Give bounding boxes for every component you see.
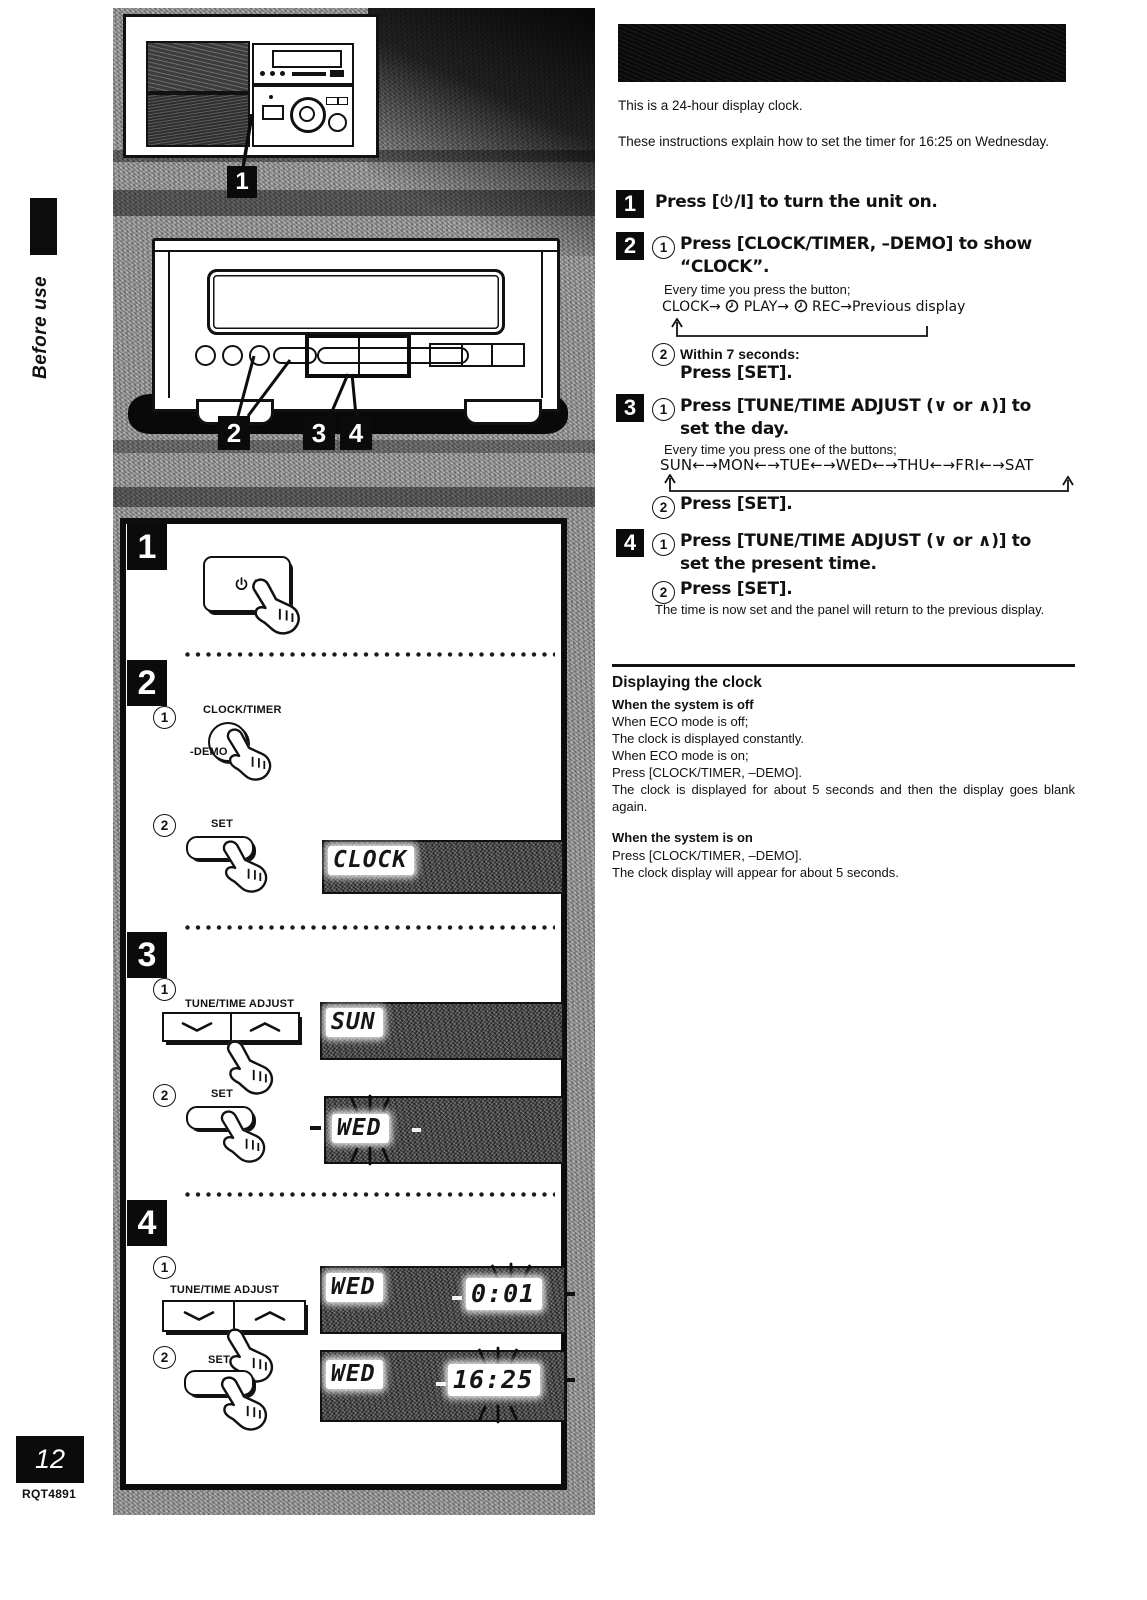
eco-on-line: When ECO mode is on; (612, 747, 749, 764)
circled-1: 1 (652, 398, 675, 421)
step-1-heading-pre: Press [ (655, 192, 719, 212)
box-step-2-number: 2 (127, 660, 167, 706)
triple-button-drawing (429, 343, 525, 367)
scan-dark-patch (368, 8, 595, 256)
circled-1: 1 (652, 533, 675, 556)
pointing-hand-icon (247, 578, 305, 636)
amplifier-unit-illustration (252, 85, 354, 147)
display-text: SUN (326, 1008, 383, 1037)
step-3-number: 3 (616, 394, 644, 422)
press-clock-timer-line: Press [CLOCK/TIMER, –DEMO]. (612, 847, 802, 864)
callout-lines-234 (210, 352, 370, 420)
display-day: WED (326, 1273, 383, 1302)
page-number-box: 12 (16, 1436, 84, 1483)
display-slot (272, 50, 342, 68)
section-divider (612, 664, 1075, 667)
set-label: SET (211, 818, 233, 830)
callout-1: 1 (227, 166, 257, 198)
step-4-number: 4 (616, 529, 644, 557)
box-step-3-number: 3 (127, 932, 167, 978)
blink-rays (334, 1146, 406, 1166)
set-label: SET (208, 1354, 230, 1366)
cycle-segment: CLOCK→ (662, 299, 721, 315)
step-3-heading-line1: Press [TUNE/TIME ADJUST (∨ or ∧)] to (680, 395, 1031, 418)
clock-appear-line: The clock display will appear for about … (612, 864, 899, 881)
knob-center (299, 106, 315, 122)
cassette-deck-illustration (146, 41, 250, 93)
circled-2: 2 (153, 1084, 176, 1107)
callout-4: 4 (340, 416, 372, 450)
box-step-1-number: 1 (127, 524, 167, 570)
button-block (330, 70, 344, 77)
display-text: WED (332, 1114, 389, 1143)
cycle-loop-arrow (663, 318, 955, 342)
step-2-number: 2 (616, 232, 644, 260)
panel-seam (541, 250, 543, 398)
display-day: WED (326, 1360, 383, 1389)
power-icon (719, 194, 734, 209)
section-label: Before use (18, 262, 64, 392)
manual-page: Before use 1 (0, 0, 1147, 1600)
display-window (207, 269, 505, 335)
intro-paragraph: These instructions explain how to set th… (618, 132, 1070, 151)
step-1-heading-post: /I] to turn the unit on. (734, 192, 937, 212)
button-dot (280, 71, 285, 76)
display-text: CLOCK (328, 846, 414, 875)
scan-streak (113, 487, 595, 507)
tune-time-adjust-label: TUNE/TIME ADJUST (185, 998, 294, 1010)
circled-1: 1 (153, 706, 176, 729)
pointing-hand-icon (216, 1376, 272, 1432)
step-1-number: 1 (616, 190, 644, 218)
blink-dash (565, 1292, 575, 1296)
circled-2: 2 (652, 343, 675, 366)
chevron-down-icon (180, 1021, 214, 1033)
panel-seam (168, 250, 170, 398)
page-number: 12 (35, 1444, 65, 1475)
blink-rays (450, 1404, 546, 1424)
step-3-heading-line2: set the day. (680, 418, 789, 441)
blink-dash (452, 1296, 462, 1300)
blink-dash (565, 1378, 575, 1382)
press-clock-timer-line: Press [CLOCK/TIMER, –DEMO]. (612, 764, 802, 781)
button-bar (292, 72, 326, 76)
callout-3: 3 (303, 416, 335, 450)
clock-section-title: Displaying the clock (612, 674, 762, 692)
button-dot (260, 71, 265, 76)
step-4-action: Press [SET]. (680, 578, 792, 601)
timer-clock-icon (725, 299, 739, 313)
dotted-separator (185, 652, 555, 657)
tune-time-adjust-label: TUNE/TIME ADJUST (170, 1284, 279, 1296)
pointing-hand-icon (218, 840, 272, 894)
step-3-cycle-line: SUN←→MON←→TUE←→WED←→THU←→FRI←→SAT (660, 456, 1034, 474)
circled-1: 1 (153, 978, 176, 1001)
blink-dash (436, 1382, 446, 1386)
step-3-action: Press [SET]. (680, 493, 792, 516)
dotted-separator (185, 1192, 555, 1197)
intro-line: This is a 24-hour display clock. (618, 96, 803, 115)
blink-dash (310, 1126, 321, 1130)
small-button (338, 97, 348, 105)
button-dot (270, 71, 275, 76)
set-label: SET (211, 1088, 233, 1100)
step-2-note: Every time you press the button; (664, 282, 850, 298)
cd-deck-illustration (146, 93, 250, 147)
step-4-note: The time is now set and the panel will r… (655, 601, 1075, 618)
circled-2: 2 (153, 1346, 176, 1369)
model-code: RQT4891 (22, 1487, 76, 1501)
step-4-heading-line1: Press [TUNE/TIME ADJUST (∨ or ∧)] to (680, 530, 1031, 553)
blink-rays (450, 1346, 546, 1366)
power-button-mini (262, 105, 284, 120)
small-knob (328, 113, 347, 132)
pointing-hand-icon (216, 1110, 270, 1164)
circled-1: 1 (652, 236, 675, 259)
box-step-4-number: 4 (127, 1200, 167, 1246)
blink-dash (412, 1128, 421, 1132)
step-2-sub-heading: Within 7 seconds: (680, 346, 800, 362)
panel-seam (155, 250, 557, 252)
indicator-dot (269, 95, 273, 99)
device-foot (464, 399, 542, 425)
display-time: 16:25 (448, 1364, 540, 1396)
callout-2: 2 (218, 416, 250, 450)
small-button (326, 97, 338, 105)
dotted-separator (185, 925, 555, 930)
step-2-cycle-line: CLOCK→ PLAY→ REC→Previous display (662, 299, 965, 315)
scan-streak (113, 190, 595, 216)
display-readout-clock: CLOCK (322, 840, 564, 894)
cycle-segment: PLAY→ (744, 299, 789, 315)
display-readout-time-initial: WED 0:01 (320, 1266, 566, 1334)
step-4-heading-line2: set the present time. (680, 553, 877, 576)
system-on-heading: When the system is on (612, 830, 753, 845)
step-2-action: Press [SET]. (680, 362, 792, 385)
chevron-down-icon (182, 1310, 216, 1322)
timer-clock-icon (794, 299, 808, 313)
tune-time-adjust-button-illustration (162, 1012, 300, 1042)
tuner-unit-illustration (252, 43, 354, 85)
step-2-heading-line2: “CLOCK”. (680, 256, 769, 279)
display-readout-sun: SUN (320, 1002, 564, 1060)
display-readout-time-set: WED 16:25 (320, 1350, 566, 1422)
clock-timer-label: CLOCK/TIMER (203, 704, 282, 716)
section-index-tab (30, 198, 57, 255)
circled-2: 2 (153, 814, 176, 837)
blink-rays (334, 1094, 406, 1114)
display-time: 0:01 (466, 1278, 542, 1310)
system-off-heading: When the system is off (612, 697, 754, 712)
chevron-up-icon (253, 1310, 287, 1322)
clock-five-seconds-line: The clock is displayed for about 5 secon… (612, 781, 1075, 815)
eco-off-line: When ECO mode is off; (612, 713, 748, 730)
step-1-heading: Press [/I] to turn the unit on. (655, 191, 938, 214)
callout-line-1 (236, 114, 260, 170)
volume-knob (290, 97, 326, 133)
display-readout-wed-blinking: WED (324, 1096, 564, 1164)
clock-constant-line: The clock is displayed constantly. (612, 730, 804, 747)
section-title-bar (618, 24, 1066, 82)
circled-1: 1 (153, 1256, 176, 1279)
cycle-segment: REC→Previous display (812, 299, 965, 315)
chevron-up-icon (248, 1021, 282, 1033)
circled-2: 2 (652, 496, 675, 519)
step-2-heading-line1: Press [CLOCK/TIMER, –DEMO] to show (680, 233, 1032, 256)
pointing-hand-icon (222, 728, 276, 782)
